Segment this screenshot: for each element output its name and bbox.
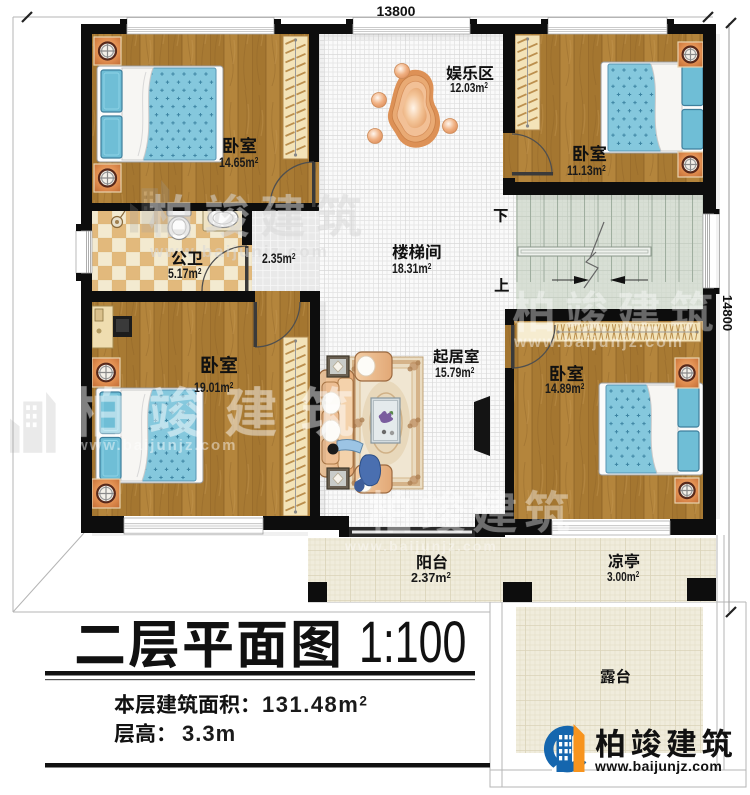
svg-text:3.3m: 3.3m [182,721,236,746]
svg-text:19.01m2: 19.01m2 [194,380,233,396]
svg-text:12.03m2: 12.03m2 [450,80,488,95]
svg-text:www.baijunjz.com: www.baijunjz.com [344,538,498,554]
svg-text:2.37m2: 2.37m2 [411,571,451,585]
svg-text:13800: 13800 [377,3,416,19]
svg-text:14800: 14800 [720,295,735,331]
svg-text:14.89m2: 14.89m2 [545,381,584,397]
svg-text:15.79m2: 15.79m2 [435,365,474,381]
svg-text:2.35m2: 2.35m2 [262,251,295,267]
svg-text:18.31m2: 18.31m2 [392,261,431,277]
svg-text:3.00m2: 3.00m2 [607,569,639,584]
svg-text:5.17m2: 5.17m2 [168,266,201,282]
svg-text:14.65m2: 14.65m2 [219,155,258,171]
svg-text:131.48m2: 131.48m2 [262,692,368,717]
svg-text:www.baijunjz.com: www.baijunjz.com [513,334,684,351]
svg-text:11.13m2: 11.13m2 [567,163,606,179]
svg-text:www.baijunjz.com: www.baijunjz.com [75,437,237,454]
svg-text:1:100: 1:100 [359,610,466,675]
svg-text:www.baijunjz.com: www.baijunjz.com [594,758,722,774]
